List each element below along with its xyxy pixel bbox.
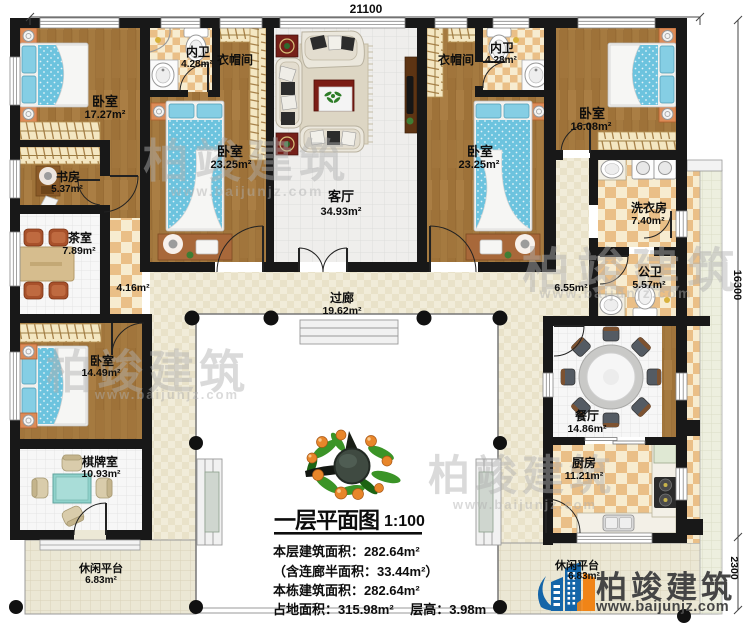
svg-text:6.55m²: 6.55m²: [554, 282, 588, 294]
svg-text:16.08m²: 16.08m²: [571, 121, 612, 133]
svg-text:餐厅: 餐厅: [575, 408, 599, 423]
svg-text:占地面积：315.98m² 层高：3.98m: 占地面积：315.98m² 层高：3.98m: [273, 602, 486, 617]
svg-text:17.27m²: 17.27m²: [85, 109, 126, 121]
svg-text:休闲平台: 休闲平台: [554, 558, 599, 572]
svg-text:棋牌室: 棋牌室: [82, 454, 118, 469]
svg-text:4.28m²: 4.28m²: [485, 55, 517, 66]
svg-text:内卫: 内卫: [186, 44, 210, 59]
svg-text:21100: 21100: [350, 2, 383, 16]
svg-text:茶室: 茶室: [67, 230, 92, 245]
svg-text:www.baijunjz.com: www.baijunjz.com: [452, 497, 597, 512]
svg-text:14.49m²: 14.49m²: [81, 367, 121, 379]
svg-text:衣帽间: 衣帽间: [438, 52, 474, 67]
svg-text:34.93m²: 34.93m²: [321, 206, 362, 218]
svg-text:休闲平台: 休闲平台: [78, 561, 123, 575]
svg-text:www.baijunjz.com: www.baijunjz.com: [170, 183, 324, 199]
svg-text:7.89m²: 7.89m²: [62, 245, 96, 257]
svg-text:11.21m²: 11.21m²: [565, 470, 604, 482]
svg-text:19.62m²: 19.62m²: [322, 305, 362, 317]
svg-text:卧室: 卧室: [90, 353, 114, 368]
svg-text:内卫: 内卫: [490, 40, 514, 55]
svg-text:洗衣房: 洗衣房: [631, 200, 667, 215]
svg-text:衣帽间: 衣帽间: [217, 52, 253, 67]
svg-text:7.40m²: 7.40m²: [631, 215, 665, 227]
svg-text:23.25m²: 23.25m²: [211, 159, 252, 171]
svg-text:10.93m²: 10.93m²: [81, 468, 121, 480]
svg-text:卧室: 卧室: [92, 94, 118, 109]
svg-text:4.16m²: 4.16m²: [116, 282, 150, 294]
svg-text:4.28m²: 4.28m²: [181, 59, 213, 70]
svg-text:厨房: 厨房: [572, 455, 596, 470]
svg-text:www.baijunjz.com: www.baijunjz.com: [94, 387, 239, 402]
svg-text:卧室: 卧室: [467, 144, 493, 159]
svg-text:www.baijunjz.com: www.baijunjz.com: [595, 599, 729, 615]
svg-text:客厅: 客厅: [328, 189, 354, 204]
svg-text:过廊: 过廊: [330, 290, 354, 305]
svg-text:书房: 书房: [56, 169, 80, 184]
svg-text:一层平面图: 一层平面图: [274, 508, 379, 533]
svg-text:公卫: 公卫: [638, 265, 662, 279]
svg-text:6.83m²: 6.83m²: [568, 571, 600, 582]
svg-text:卧室: 卧室: [579, 106, 605, 121]
svg-text:本层建筑面积：282.64m²: 本层建筑面积：282.64m²: [273, 544, 420, 559]
svg-text:5.37m²: 5.37m²: [51, 184, 83, 195]
svg-text:6.83m²: 6.83m²: [85, 575, 117, 586]
svg-text:（含连廊半面积：33.44m²）: （含连廊半面积：33.44m²）: [273, 564, 438, 579]
svg-text:14.86m²: 14.86m²: [567, 423, 607, 435]
svg-text:本栋建筑面积：282.64m²: 本栋建筑面积：282.64m²: [273, 583, 420, 598]
svg-text:卧室: 卧室: [217, 144, 243, 159]
svg-text:23.25m²: 23.25m²: [459, 159, 500, 171]
svg-text:16300: 16300: [731, 270, 743, 301]
svg-text:1:100: 1:100: [384, 513, 425, 530]
svg-text:5.57m²: 5.57m²: [632, 279, 666, 291]
